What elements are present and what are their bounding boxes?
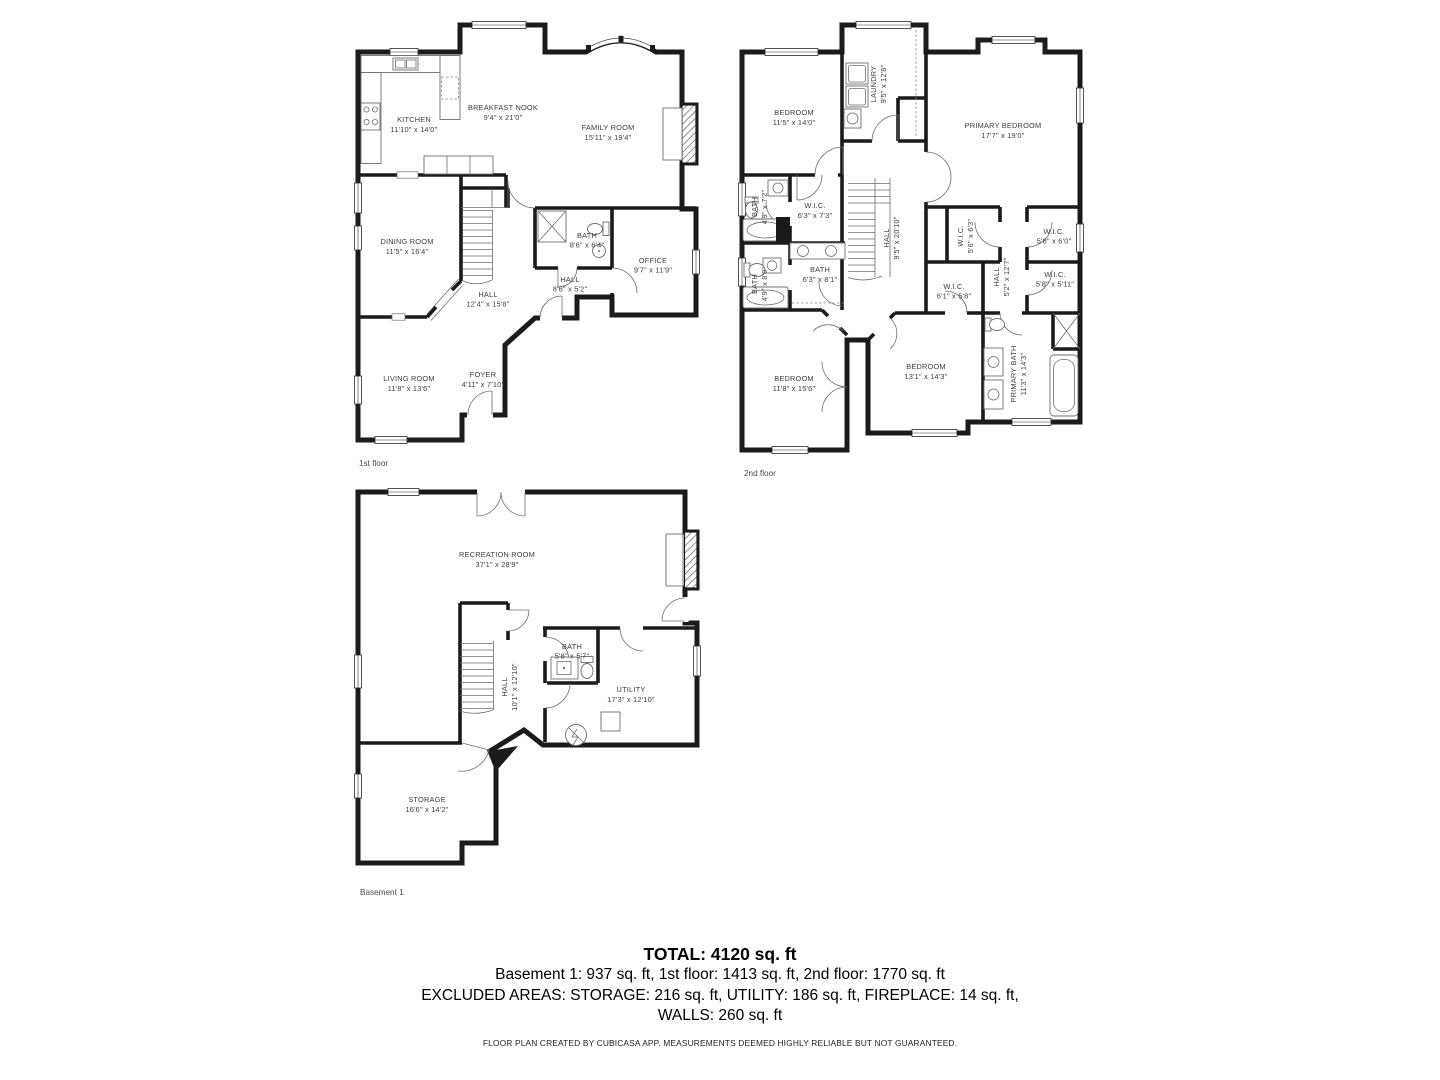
svg-text:6'3" x 8'1": 6'3" x 8'1" — [803, 275, 838, 284]
svg-text:PRIMARY BATH: PRIMARY BATH — [1009, 345, 1018, 402]
room-label-bath-basement: BATH 5'8" x 5'7" — [555, 642, 590, 661]
first-floor-interior-walls — [358, 175, 696, 317]
svg-text:5'8" x 5'11": 5'8" x 5'11" — [1036, 280, 1074, 289]
svg-text:11'5" x 16'4": 11'5" x 16'4" — [386, 247, 429, 256]
svg-text:BREAKFAST NOOK: BREAKFAST NOOK — [468, 103, 538, 112]
summary-total: TOTAL: 4120 sq. ft — [0, 944, 1440, 965]
room-label-family-room: FAMILY ROOM 15'11" x 19'4" — [582, 123, 635, 142]
svg-text:16'6" x 14'2": 16'6" x 14'2" — [405, 805, 448, 814]
svg-text:BATH: BATH — [562, 642, 582, 651]
svg-text:11'5" x 14'0": 11'5" x 14'0" — [773, 118, 816, 127]
svg-text:4'9" x 7'2": 4'9" x 7'2" — [760, 190, 769, 225]
svg-text:W.I.C.: W.I.C. — [804, 201, 825, 210]
room-label-laundry: LAUNDRY 9'5" x 12'8" — [869, 64, 888, 103]
svg-text:FAMILY ROOM: FAMILY ROOM — [582, 123, 635, 132]
svg-text:LAUNDRY: LAUNDRY — [869, 66, 878, 103]
svg-text:9'5" x 20'10": 9'5" x 20'10" — [892, 216, 901, 259]
basement-windows — [355, 489, 701, 799]
room-label-wic-2: W.I.C. 5'6" x 6'3" — [956, 219, 975, 254]
svg-text:17'3" x 12'10": 17'3" x 12'10" — [607, 695, 655, 704]
svg-text:6'3" x 7'3": 6'3" x 7'3" — [798, 211, 833, 220]
svg-text:6'1" x 5'8": 6'1" x 5'8" — [937, 292, 972, 301]
svg-text:UTILITY: UTILITY — [617, 685, 646, 694]
room-label-primary-bath: PRIMARY BATH 11'3" x 14'3" — [1009, 345, 1028, 402]
svg-text:BEDROOM: BEDROOM — [774, 108, 814, 117]
svg-text:OFFICE: OFFICE — [639, 256, 667, 265]
room-label-living-room: LIVING ROOM 11'8" x 13'6" — [383, 374, 434, 393]
svg-text:12'4" x 15'8": 12'4" x 15'8" — [466, 300, 509, 309]
room-label-bedroom-3: BEDROOM 13'1" x 14'3" — [904, 362, 947, 381]
room-label-breakfast-nook: BREAKFAST NOOK 9'4" x 21'0" — [468, 103, 538, 122]
svg-text:HALL: HALL — [478, 290, 497, 299]
svg-text:5'2" x 12'7": 5'2" x 12'7" — [1002, 257, 1011, 296]
svg-text:9'5" x 12'8": 9'5" x 12'8" — [879, 64, 888, 103]
svg-text:37'1" x 28'9": 37'1" x 28'9" — [475, 560, 518, 569]
floorplan-page: KITCHEN 11'10" x 14'0" BREAKFAST NOOK 9'… — [0, 0, 1440, 1080]
svg-text:4'11" x 7'10": 4'11" x 7'10" — [462, 380, 505, 389]
svg-text:W.I.C.: W.I.C. — [956, 225, 965, 246]
svg-text:LIVING ROOM: LIVING ROOM — [383, 374, 434, 383]
basement-fireplace-icon — [666, 532, 697, 588]
svg-text:4'9" x 8'0": 4'9" x 8'0" — [760, 267, 769, 302]
room-label-wic-3: W.I.C. 5'8" x 6'0" — [1037, 227, 1072, 246]
svg-text:13'1" x 14'3": 13'1" x 14'3" — [904, 372, 947, 381]
room-label-recreation-room: RECREATION ROOM 37'1" x 28'9" — [459, 550, 535, 569]
svg-text:5'8" x 5'7": 5'8" x 5'7" — [555, 652, 590, 661]
first-floor-fireplace-icon — [663, 105, 696, 163]
svg-text:5'6" x 6'3": 5'6" x 6'3" — [966, 219, 975, 254]
svg-text:W.I.C.: W.I.C. — [943, 282, 964, 291]
svg-text:HALL: HALL — [992, 267, 1001, 286]
room-label-dining-room: DINING ROOM 11'5" x 16'4" — [380, 237, 433, 256]
svg-text:RECREATION ROOM: RECREATION ROOM — [459, 550, 535, 559]
svg-text:11'8" x 13'6": 11'8" x 13'6" — [388, 384, 431, 393]
svg-text:HALL: HALL — [882, 228, 891, 247]
svg-text:BEDROOM: BEDROOM — [906, 362, 946, 371]
svg-text:DINING ROOM: DINING ROOM — [380, 237, 433, 246]
svg-text:5'8" x 6'0": 5'8" x 6'0" — [1037, 237, 1072, 246]
first-floor-plan: KITCHEN 11'10" x 14'0" BREAKFAST NOOK 9'… — [355, 22, 700, 469]
summary-excluded-areas: EXCLUDED AREAS: STORAGE: 216 sq. ft, UTI… — [0, 986, 1440, 1007]
room-label-bath-2: BATH 6'3" x 8'1" — [803, 265, 838, 284]
disclaimer: FLOOR PLAN CREATED BY CUBICASA APP. MEAS… — [0, 1038, 1440, 1048]
room-label-primary-bedroom: PRIMARY BEDROOM 17'7" x 19'0" — [965, 121, 1042, 140]
room-label-wic-4: W.I.C. 6'1" x 5'8" — [937, 282, 972, 301]
svg-text:10'1" x 12'10": 10'1" x 12'10" — [510, 663, 519, 711]
room-label-wic-1: W.I.C. 6'3" x 7'3" — [798, 201, 833, 220]
svg-text:9'7" x 11'9": 9'7" x 11'9" — [634, 266, 672, 275]
svg-text:8'6" x 6'4": 8'6" x 6'4" — [570, 241, 605, 250]
room-label-storage: STORAGE 16'6" x 14'2" — [405, 795, 448, 814]
svg-text:FOYER: FOYER — [470, 370, 496, 379]
summary-walls: WALLS: 260 sq. ft — [0, 1006, 1440, 1027]
room-label-bedroom-2: BEDROOM 11'8" x 15'6" — [773, 374, 816, 393]
svg-text:8'6" x 5'2": 8'6" x 5'2" — [553, 285, 588, 294]
first-floor-stairs — [461, 189, 508, 284]
second-floor-plan: BEDROOM 11'5" x 14'0" LAUNDRY 9'5" x 12'… — [739, 22, 1084, 479]
room-label-hall-1f: HALL 12'4" x 15'8" — [466, 290, 509, 309]
svg-text:HALL: HALL — [560, 275, 579, 284]
svg-text:17'7" x 19'0": 17'7" x 19'0" — [981, 131, 1024, 140]
svg-text:PRIMARY BEDROOM: PRIMARY BEDROOM — [965, 121, 1042, 130]
svg-text:11'10" x 14'0": 11'10" x 14'0" — [391, 125, 438, 134]
floor-label-basement: Basement 1 — [360, 888, 404, 897]
summary-floor-breakdown: Basement 1: 937 sq. ft, 1st floor: 1413 … — [0, 965, 1440, 986]
svg-text:9'4" x 21'0": 9'4" x 21'0" — [484, 113, 523, 122]
svg-text:KITCHEN: KITCHEN — [397, 115, 431, 124]
primary-bath-fixtures — [984, 313, 1080, 416]
floor-label-1st: 1st floor — [359, 459, 388, 468]
svg-text:15'11" x 19'4": 15'11" x 19'4" — [585, 133, 632, 142]
utility-fixtures — [566, 712, 621, 746]
room-label-hall-basement: HALL 10'1" x 12'10" — [500, 663, 519, 711]
room-label-wic-5: W.I.C. 5'8" x 5'11" — [1036, 270, 1074, 289]
svg-text:BATH: BATH — [750, 197, 759, 217]
area-summary: TOTAL: 4120 sq. ft Basement 1: 937 sq. f… — [0, 944, 1440, 1048]
svg-text:STORAGE: STORAGE — [408, 795, 445, 804]
first-floor-bath-fixtures — [538, 211, 609, 258]
svg-text:BATH: BATH — [810, 265, 830, 274]
floorplan-canvas: KITCHEN 11'10" x 14'0" BREAKFAST NOOK 9'… — [0, 0, 1440, 940]
svg-text:BEDROOM: BEDROOM — [774, 374, 814, 383]
svg-text:BATH: BATH — [750, 274, 759, 294]
room-label-bedroom-1: BEDROOM 11'5" x 14'0" — [773, 108, 816, 127]
svg-text:BATH: BATH — [577, 231, 597, 240]
room-label-kitchen: KITCHEN 11'10" x 14'0" — [391, 115, 438, 134]
room-label-office: OFFICE 9'7" x 11'9" — [634, 256, 672, 275]
basement-interior-walls — [358, 603, 697, 743]
svg-text:HALL: HALL — [500, 677, 509, 696]
room-label-hall-center: HALL 9'5" x 20'10" — [882, 216, 901, 259]
floor-label-2nd: 2nd floor — [744, 469, 776, 478]
svg-text:W.I.C.: W.I.C. — [1044, 270, 1065, 279]
room-label-utility: UTILITY 17'3" x 12'10" — [607, 685, 655, 704]
basement-stairs — [460, 641, 494, 713]
svg-text:11'8" x 15'6": 11'8" x 15'6" — [773, 384, 816, 393]
svg-text:11'3" x 14'3": 11'3" x 14'3" — [1019, 353, 1028, 396]
svg-text:W.I.C.: W.I.C. — [1043, 227, 1064, 236]
basement-floor-plan: RECREATION ROOM 37'1" x 28'9" BATH 5'8" … — [355, 489, 701, 898]
room-label-foyer: FOYER 4'11" x 7'10" — [462, 370, 505, 389]
